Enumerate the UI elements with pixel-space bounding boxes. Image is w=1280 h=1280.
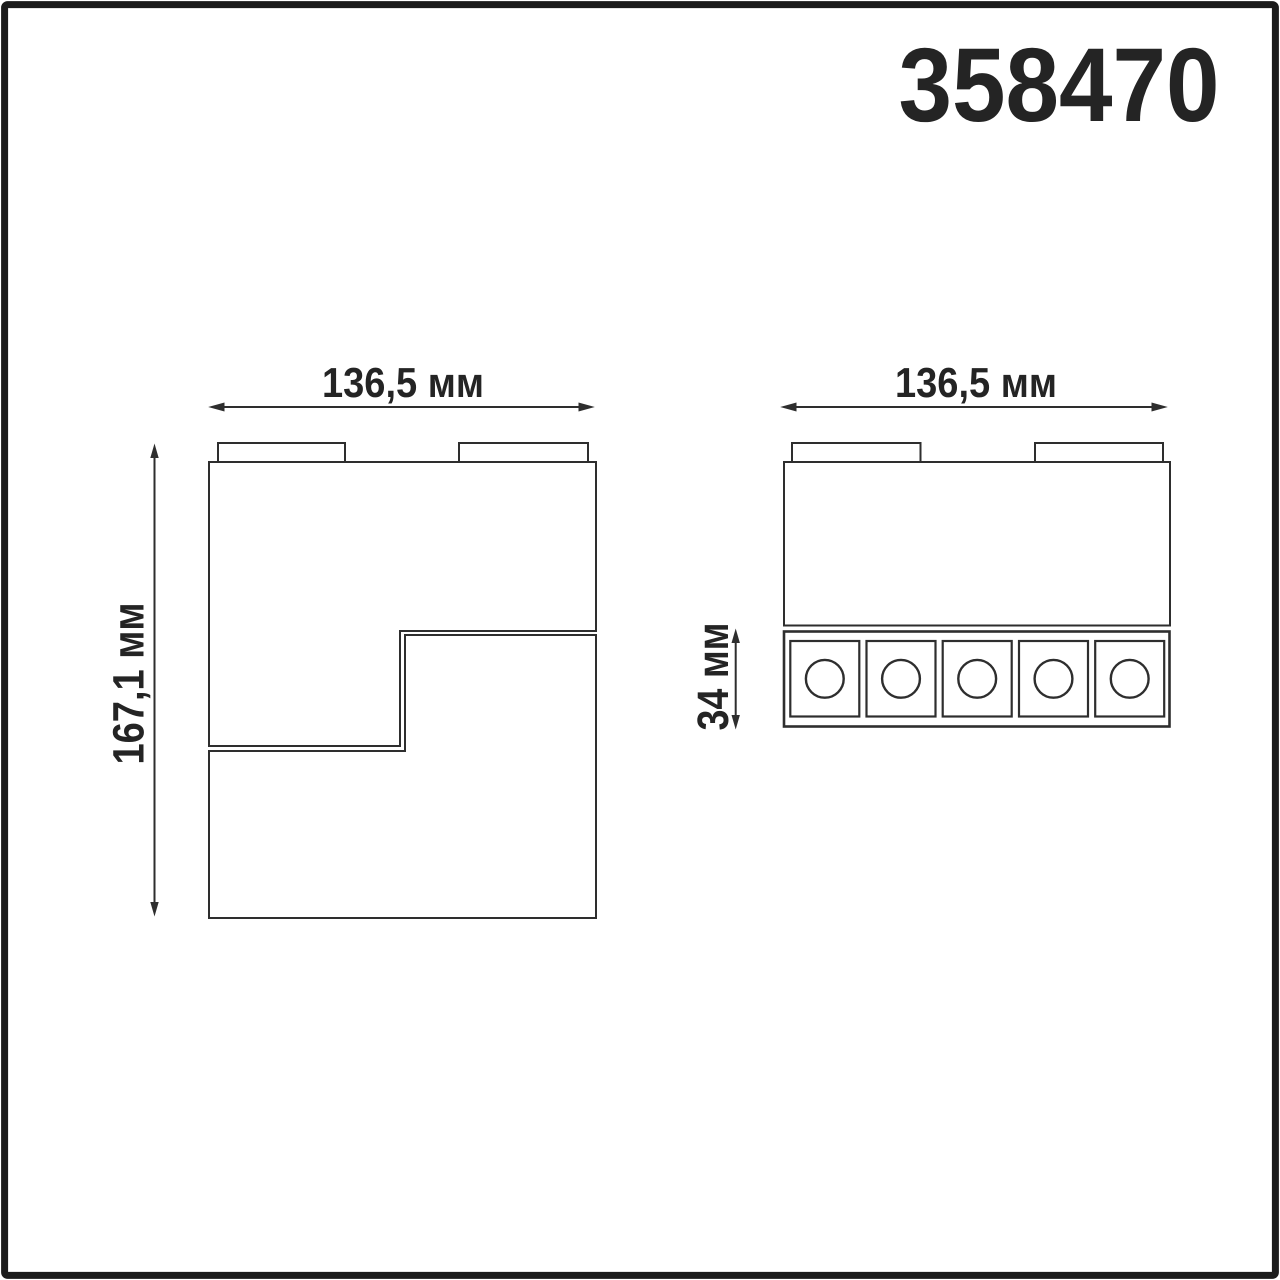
svg-text:358470: 358470 bbox=[899, 27, 1220, 144]
svg-text:136,5 мм: 136,5 мм bbox=[895, 359, 1057, 406]
svg-text:136,5 мм: 136,5 мм bbox=[322, 359, 484, 406]
svg-text:167,1 мм: 167,1 мм bbox=[105, 603, 154, 765]
svg-text:34 мм: 34 мм bbox=[689, 623, 738, 731]
